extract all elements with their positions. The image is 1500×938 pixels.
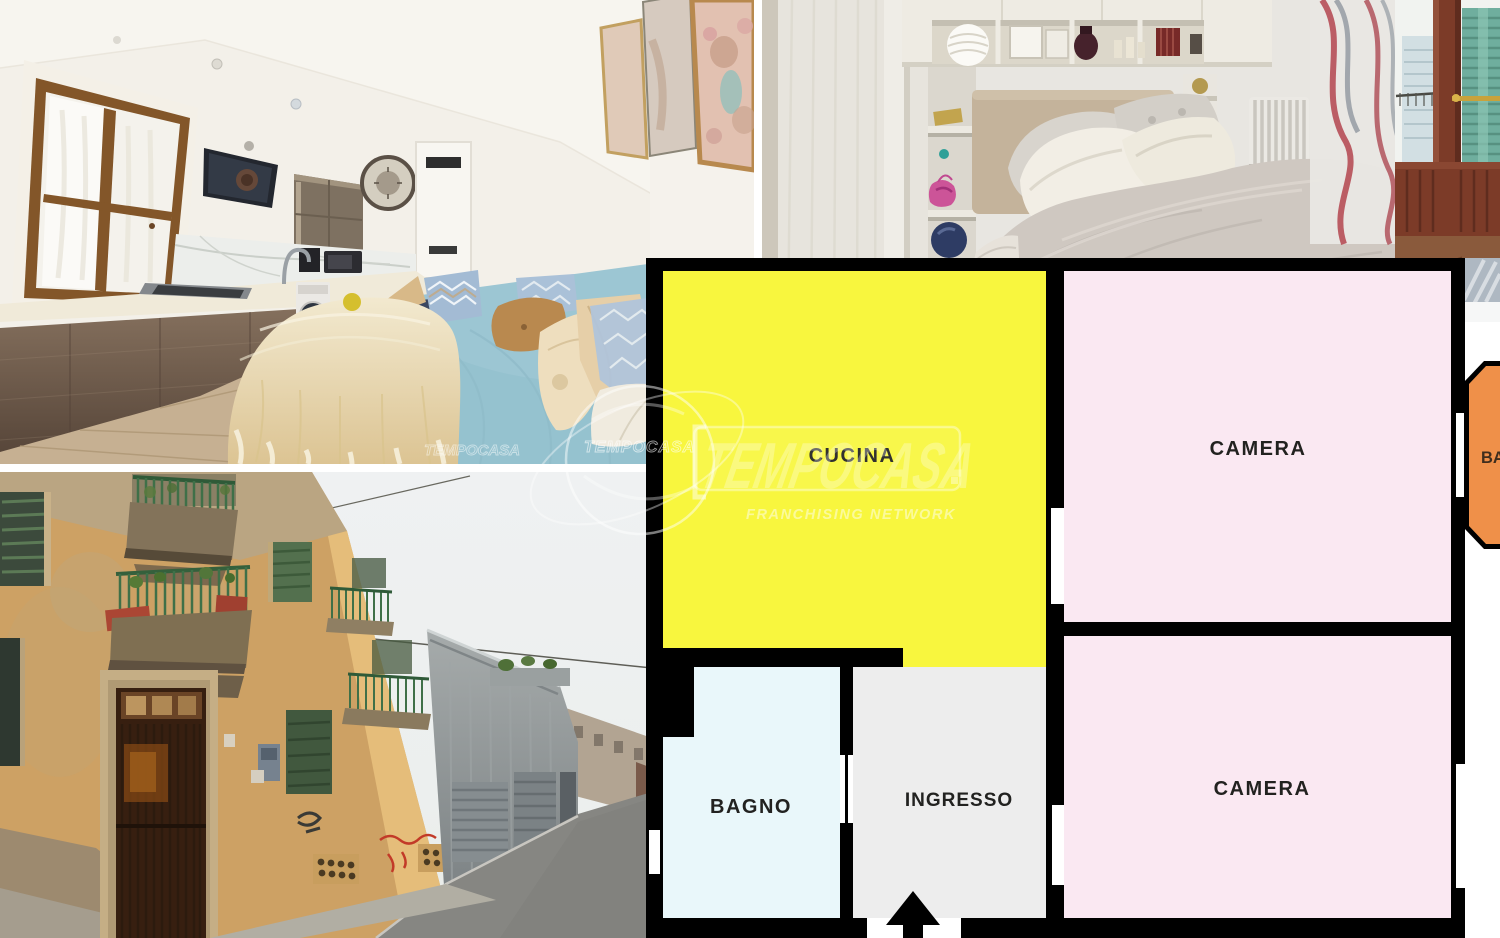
svg-text:INGRESSO: INGRESSO — [905, 790, 1013, 811]
svg-text:CAMERA: CAMERA — [1214, 778, 1311, 800]
svg-text:TEMPOCASA: TEMPOCASA — [424, 442, 520, 459]
svg-text:TEMPOCASA: TEMPOCASA — [694, 429, 982, 502]
svg-text:FRANCHISING NETWORK: FRANCHISING NETWORK — [746, 507, 956, 523]
svg-text:BALCONE: BALCONE — [1481, 449, 1500, 467]
svg-text:TEMPOCASA: TEMPOCASA — [584, 439, 695, 456]
svg-text:BAGNO: BAGNO — [710, 796, 792, 818]
svg-text:CAMERA: CAMERA — [1210, 438, 1307, 460]
